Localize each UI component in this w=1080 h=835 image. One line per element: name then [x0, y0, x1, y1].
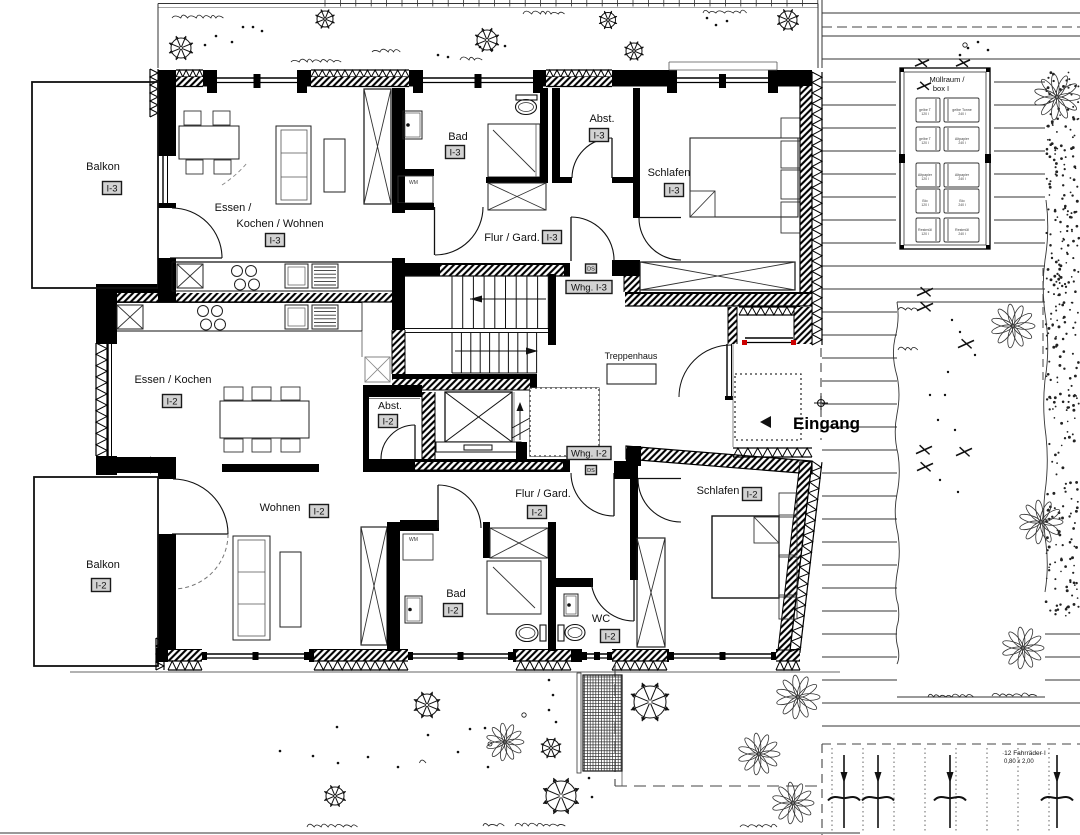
svg-text:I-2: I-2 [447, 605, 458, 616]
svg-text:I-2: I-2 [313, 506, 324, 517]
svg-text:240 l: 240 l [958, 112, 966, 116]
svg-text:Abst.: Abst. [589, 113, 614, 125]
svg-text:I-2: I-2 [604, 631, 615, 642]
svg-text:Kochen / Wohnen: Kochen / Wohnen [236, 218, 323, 230]
svg-text:DS: DS [587, 266, 595, 272]
svg-text:I-2: I-2 [95, 580, 106, 591]
svg-text:Essen /: Essen / [215, 202, 253, 214]
svg-text:box I: box I [933, 84, 949, 93]
svg-text:WM: WM [409, 180, 418, 186]
svg-text:Eingang: Eingang [793, 414, 860, 433]
svg-text:Schlafen: Schlafen [697, 485, 740, 497]
svg-text:240 l: 240 l [958, 203, 966, 207]
svg-text:·12 Fahrräder·: ·12 Fahrräder· [1002, 750, 1044, 757]
svg-text:Balkon: Balkon [86, 161, 120, 173]
svg-text:240 l: 240 l [958, 232, 966, 236]
svg-text:Schlafen: Schlafen [648, 167, 691, 179]
svg-text:Abst.: Abst. [378, 400, 402, 412]
svg-text:Whg. I-3: Whg. I-3 [571, 282, 607, 293]
svg-text:120 l: 120 l [921, 141, 929, 145]
svg-text:· I ·: · I · [1040, 750, 1050, 757]
svg-text:I-3: I-3 [106, 183, 117, 194]
svg-text:Flur / Gard.: Flur / Gard. [484, 232, 540, 244]
svg-text:Whg. I-2: Whg. I-2 [571, 448, 607, 459]
svg-text:Essen / Kochen: Essen / Kochen [134, 374, 211, 386]
svg-text:I-3: I-3 [269, 235, 280, 246]
svg-text:Bad: Bad [448, 131, 468, 143]
svg-text:I-3: I-3 [449, 147, 460, 158]
svg-text:120 l: 120 l [921, 177, 929, 181]
svg-text:Flur / Gard.: Flur / Gard. [515, 488, 571, 500]
svg-text:I-2: I-2 [746, 489, 757, 500]
svg-text:Müllraum /: Müllraum / [929, 75, 965, 84]
svg-text:120 l: 120 l [921, 232, 929, 236]
svg-text:240 l: 240 l [958, 177, 966, 181]
svg-text:I-3: I-3 [668, 185, 679, 196]
svg-text:Treppenhaus: Treppenhaus [605, 351, 658, 361]
svg-text:120 l: 120 l [921, 112, 929, 116]
svg-text:Bad: Bad [446, 588, 466, 600]
svg-text:DS: DS [587, 468, 595, 474]
svg-text:I-3: I-3 [546, 232, 557, 243]
svg-text:0,80 x 2,00: 0,80 x 2,00 [1004, 759, 1034, 765]
svg-text:WC: WC [592, 613, 610, 625]
svg-text:120 l: 120 l [921, 203, 929, 207]
svg-text:WM: WM [409, 537, 418, 543]
svg-text:I-3: I-3 [593, 130, 604, 141]
svg-text:I-2: I-2 [166, 396, 177, 407]
svg-text:I-2: I-2 [531, 507, 542, 518]
svg-text:240 l: 240 l [958, 141, 966, 145]
svg-text:Wohnen: Wohnen [260, 502, 301, 514]
svg-text:Balkon: Balkon [86, 559, 120, 571]
svg-text:I-2: I-2 [382, 416, 393, 427]
